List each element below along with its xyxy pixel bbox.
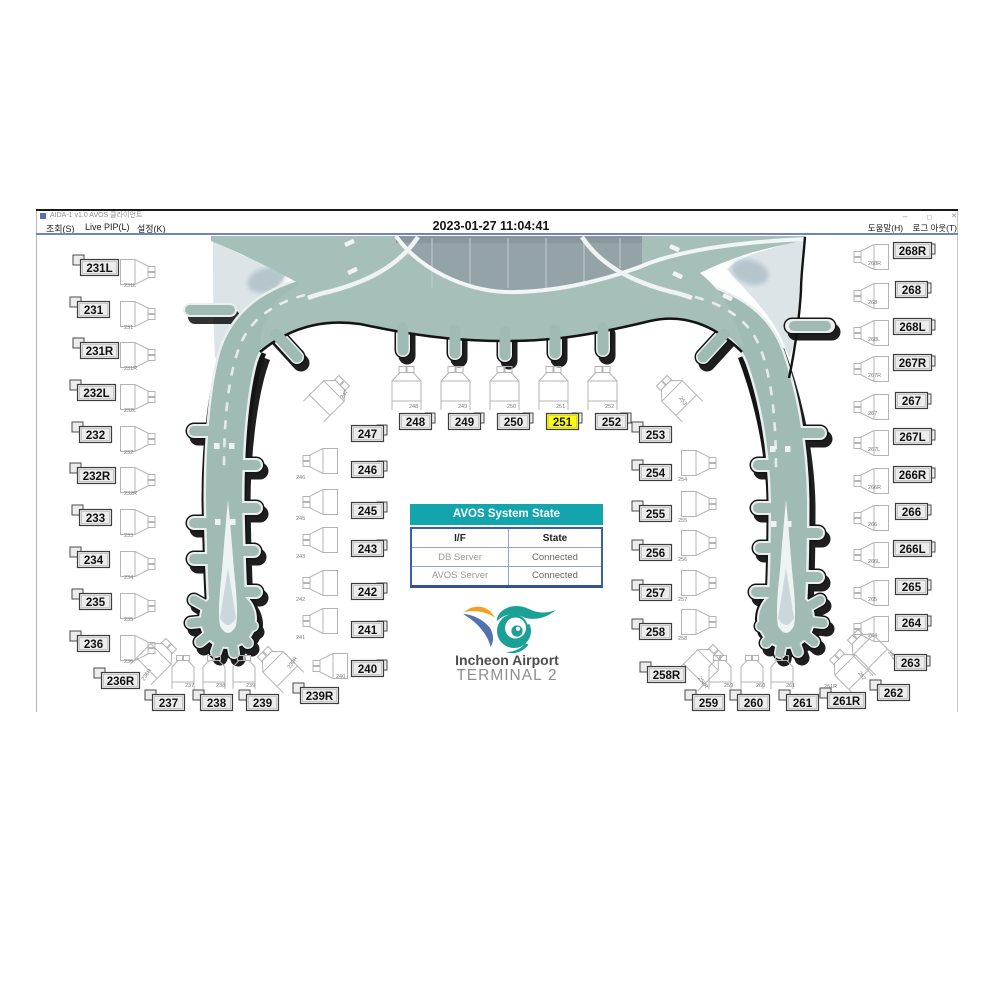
svg-text:251: 251 bbox=[553, 417, 573, 429]
svg-text:264: 264 bbox=[902, 618, 922, 630]
svg-text:249: 249 bbox=[458, 404, 467, 410]
svg-text:236R: 236R bbox=[141, 668, 153, 682]
svg-text:232L: 232L bbox=[124, 408, 136, 414]
svg-text:266R: 266R bbox=[899, 470, 927, 482]
svg-text:268L: 268L bbox=[868, 337, 880, 343]
svg-text:239R: 239R bbox=[287, 656, 299, 670]
svg-text:259: 259 bbox=[724, 683, 733, 689]
svg-text:254: 254 bbox=[646, 468, 666, 480]
svg-text:239: 239 bbox=[246, 683, 255, 689]
svg-text:241: 241 bbox=[358, 625, 378, 637]
svg-text:251: 251 bbox=[556, 404, 565, 410]
svg-text:268R: 268R bbox=[868, 261, 881, 267]
svg-text:257: 257 bbox=[678, 597, 687, 603]
svg-text:249: 249 bbox=[455, 417, 474, 429]
svg-text:232L: 232L bbox=[83, 388, 109, 400]
svg-text:239: 239 bbox=[253, 698, 272, 710]
svg-text:231R: 231R bbox=[124, 366, 137, 372]
svg-text:239R: 239R bbox=[306, 691, 334, 703]
svg-text:261: 261 bbox=[786, 683, 795, 689]
svg-text:237: 237 bbox=[185, 683, 194, 689]
svg-text:268: 268 bbox=[868, 300, 877, 306]
svg-text:261R: 261R bbox=[833, 696, 861, 708]
svg-text:231: 231 bbox=[124, 325, 133, 331]
svg-text:246: 246 bbox=[296, 475, 305, 481]
svg-text:253: 253 bbox=[646, 430, 665, 442]
svg-text:268R: 268R bbox=[899, 246, 927, 258]
svg-text:245: 245 bbox=[296, 516, 305, 522]
svg-text:234: 234 bbox=[124, 575, 133, 581]
svg-text:254: 254 bbox=[678, 477, 687, 483]
svg-text:267R: 267R bbox=[899, 358, 927, 370]
svg-text:267: 267 bbox=[868, 411, 877, 417]
svg-text:260: 260 bbox=[744, 698, 763, 710]
svg-text:266R: 266R bbox=[868, 485, 881, 491]
svg-text:261: 261 bbox=[793, 698, 813, 710]
svg-text:231R: 231R bbox=[86, 346, 114, 358]
svg-text:250: 250 bbox=[504, 417, 523, 429]
svg-text:258: 258 bbox=[678, 636, 687, 642]
svg-text:247: 247 bbox=[340, 389, 350, 400]
svg-text:231: 231 bbox=[84, 305, 104, 317]
svg-text:232R: 232R bbox=[83, 471, 111, 483]
svg-text:258R: 258R bbox=[696, 676, 708, 690]
svg-text:231L: 231L bbox=[124, 283, 136, 289]
svg-text:236: 236 bbox=[84, 639, 103, 651]
svg-text:255: 255 bbox=[678, 518, 687, 524]
svg-text:250: 250 bbox=[507, 404, 516, 410]
svg-text:240: 240 bbox=[358, 664, 377, 676]
svg-text:259: 259 bbox=[699, 698, 718, 710]
svg-text:268: 268 bbox=[902, 285, 922, 297]
svg-text:237: 237 bbox=[159, 698, 178, 710]
svg-text:267L: 267L bbox=[899, 432, 925, 444]
svg-text:238: 238 bbox=[207, 698, 227, 710]
svg-text:263: 263 bbox=[901, 658, 920, 670]
svg-text:233: 233 bbox=[124, 533, 133, 539]
svg-text:266L: 266L bbox=[899, 544, 925, 556]
svg-text:242: 242 bbox=[296, 597, 305, 603]
svg-text:248: 248 bbox=[409, 404, 418, 410]
svg-text:247: 247 bbox=[358, 429, 377, 441]
svg-text:235: 235 bbox=[124, 617, 133, 623]
svg-text:232: 232 bbox=[86, 430, 105, 442]
svg-text:262: 262 bbox=[884, 688, 903, 700]
svg-text:256: 256 bbox=[646, 548, 665, 560]
svg-text:238: 238 bbox=[216, 683, 225, 689]
svg-text:234: 234 bbox=[84, 555, 104, 567]
svg-text:255: 255 bbox=[646, 509, 666, 521]
svg-text:252: 252 bbox=[602, 417, 621, 429]
svg-text:258R: 258R bbox=[653, 670, 681, 682]
svg-text:260: 260 bbox=[756, 683, 765, 689]
svg-text:256: 256 bbox=[678, 557, 687, 563]
svg-text:245: 245 bbox=[358, 506, 378, 518]
svg-text:235: 235 bbox=[86, 597, 106, 609]
svg-text:267: 267 bbox=[902, 396, 921, 408]
svg-text:246: 246 bbox=[358, 465, 377, 477]
svg-text:258: 258 bbox=[646, 627, 666, 639]
svg-text:265: 265 bbox=[868, 597, 877, 603]
svg-text:236R: 236R bbox=[107, 676, 135, 688]
svg-text:267L: 267L bbox=[868, 447, 880, 453]
svg-text:232R: 232R bbox=[124, 491, 137, 497]
svg-text:232: 232 bbox=[124, 450, 133, 456]
svg-text:243: 243 bbox=[296, 554, 305, 560]
svg-text:266: 266 bbox=[902, 507, 921, 519]
svg-text:257: 257 bbox=[646, 588, 665, 600]
svg-text:252: 252 bbox=[605, 404, 614, 410]
svg-text:243: 243 bbox=[358, 544, 377, 556]
svg-text:242: 242 bbox=[358, 587, 377, 599]
svg-text:266L: 266L bbox=[868, 559, 880, 565]
svg-text:265: 265 bbox=[902, 582, 922, 594]
svg-text:267R: 267R bbox=[868, 373, 881, 379]
svg-text:231L: 231L bbox=[86, 263, 112, 275]
svg-text:266: 266 bbox=[868, 522, 877, 528]
svg-text:241: 241 bbox=[296, 635, 305, 641]
svg-text:240: 240 bbox=[336, 674, 345, 680]
svg-text:248: 248 bbox=[406, 417, 426, 429]
svg-text:268L: 268L bbox=[899, 322, 925, 334]
svg-text:233: 233 bbox=[86, 513, 105, 525]
